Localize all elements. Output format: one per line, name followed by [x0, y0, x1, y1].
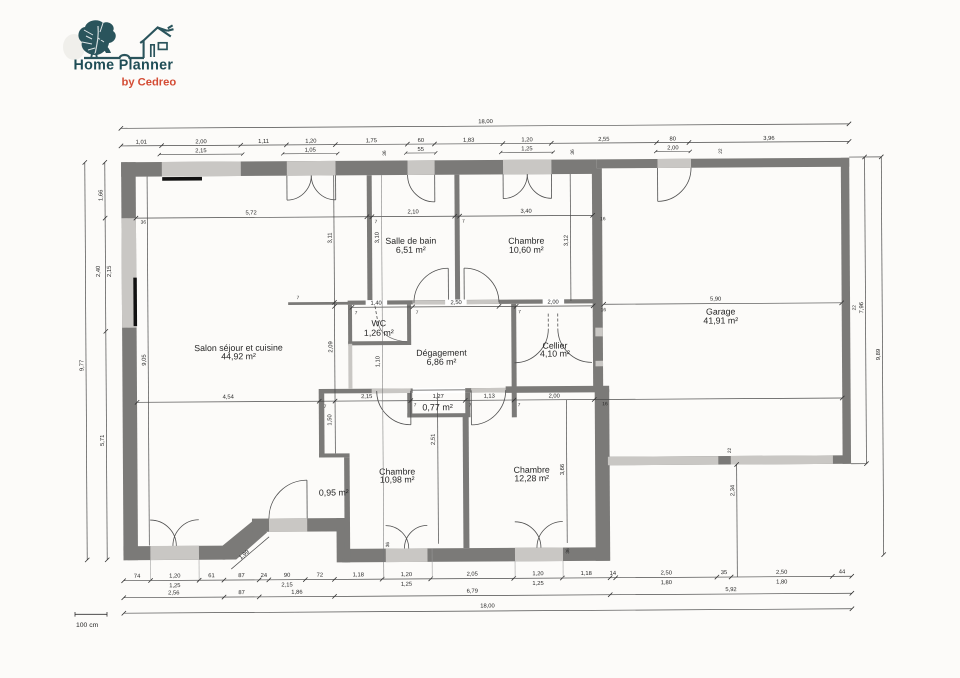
svg-text:10,98 m²: 10,98 m²: [380, 474, 415, 484]
svg-text:7: 7: [414, 402, 417, 408]
svg-text:1,13: 1,13: [484, 394, 495, 400]
svg-text:2,15: 2,15: [107, 266, 113, 277]
svg-text:36: 36: [570, 149, 576, 155]
svg-text:100 cm: 100 cm: [76, 622, 99, 629]
svg-text:74: 74: [134, 574, 141, 580]
svg-text:87: 87: [238, 590, 244, 596]
svg-text:Home Planner: Home Planner: [74, 58, 174, 74]
svg-text:by Cedreo: by Cedreo: [122, 77, 177, 89]
svg-text:22: 22: [727, 447, 733, 453]
svg-text:1,25: 1,25: [532, 581, 543, 587]
svg-text:2,50: 2,50: [661, 570, 672, 576]
svg-text:1,10: 1,10: [375, 356, 381, 367]
svg-text:41,91 m²: 41,91 m²: [703, 315, 738, 325]
svg-text:90: 90: [284, 573, 290, 579]
svg-text:6,86 m²: 6,86 m²: [427, 357, 457, 367]
svg-text:5,72: 5,72: [245, 210, 256, 216]
svg-text:5,92: 5,92: [725, 587, 736, 593]
svg-text:7: 7: [324, 404, 327, 410]
svg-text:1,20: 1,20: [305, 139, 316, 145]
svg-text:6,51 m²: 6,51 m²: [396, 245, 426, 255]
svg-text:1,20: 1,20: [401, 572, 412, 578]
svg-text:1,01: 1,01: [136, 140, 147, 146]
svg-text:3,12: 3,12: [564, 235, 570, 246]
svg-text:0,77 m²: 0,77 m²: [422, 402, 453, 412]
svg-text:2,50: 2,50: [450, 300, 461, 306]
svg-text:1,25: 1,25: [521, 146, 532, 152]
svg-text:1,40: 1,40: [370, 301, 381, 307]
svg-text:36: 36: [382, 150, 388, 156]
svg-text:3,11: 3,11: [328, 232, 334, 243]
svg-text:16: 16: [601, 307, 607, 313]
svg-text:3,40: 3,40: [520, 209, 531, 215]
svg-text:22: 22: [718, 148, 724, 154]
svg-text:2,05: 2,05: [467, 572, 478, 578]
svg-text:3,10: 3,10: [375, 232, 381, 243]
svg-text:1,83: 1,83: [463, 138, 474, 144]
svg-text:14: 14: [610, 571, 617, 577]
svg-text:7: 7: [469, 403, 472, 409]
svg-text:7,96: 7,96: [859, 302, 865, 313]
svg-text:3,66: 3,66: [560, 464, 566, 475]
svg-text:2,09: 2,09: [328, 341, 334, 352]
svg-text:4,54: 4,54: [223, 395, 235, 401]
svg-text:60: 60: [418, 138, 424, 144]
svg-text:2,00: 2,00: [195, 139, 206, 145]
svg-text:80: 80: [670, 136, 676, 142]
svg-text:72: 72: [317, 573, 323, 579]
svg-text:1,05: 1,05: [305, 148, 316, 154]
svg-text:2,00: 2,00: [549, 394, 560, 400]
svg-text:1,66: 1,66: [98, 190, 104, 201]
svg-text:1,86: 1,86: [291, 590, 302, 596]
svg-text:7: 7: [375, 219, 378, 225]
svg-text:44: 44: [839, 569, 846, 575]
svg-text:7: 7: [518, 402, 521, 408]
svg-text:35: 35: [721, 570, 727, 576]
svg-text:1,80: 1,80: [661, 580, 672, 586]
svg-text:1,80: 1,80: [776, 579, 787, 585]
svg-text:1,27: 1,27: [433, 394, 444, 400]
svg-text:24: 24: [261, 573, 268, 579]
svg-text:36: 36: [141, 220, 147, 226]
svg-text:2,15: 2,15: [281, 582, 292, 588]
svg-text:2,00: 2,00: [667, 145, 678, 151]
svg-text:18,00: 18,00: [478, 119, 493, 125]
svg-text:10,60 m²: 10,60 m²: [509, 245, 544, 255]
svg-text:36: 36: [565, 548, 571, 554]
svg-text:2,00: 2,00: [547, 300, 558, 306]
svg-text:9,77: 9,77: [79, 360, 85, 371]
svg-text:0,95 m²: 0,95 m²: [319, 487, 349, 497]
svg-text:2,15: 2,15: [361, 394, 372, 400]
svg-text:36: 36: [385, 542, 391, 548]
svg-text:7: 7: [297, 295, 300, 301]
svg-text:1,18: 1,18: [581, 571, 592, 577]
svg-text:7: 7: [462, 219, 465, 225]
svg-text:1,75: 1,75: [366, 138, 377, 144]
svg-text:2,15: 2,15: [195, 148, 206, 154]
svg-text:9,05: 9,05: [142, 354, 148, 365]
svg-text:1,20: 1,20: [521, 137, 532, 143]
svg-text:87: 87: [238, 573, 244, 579]
svg-text:55: 55: [417, 147, 423, 153]
svg-text:6,79: 6,79: [467, 589, 478, 595]
svg-text:7: 7: [518, 309, 521, 315]
svg-text:2,51: 2,51: [431, 434, 437, 445]
svg-text:9,89: 9,89: [876, 349, 882, 360]
svg-text:3,96: 3,96: [763, 136, 774, 142]
svg-text:1,20: 1,20: [532, 571, 543, 577]
svg-text:5,71: 5,71: [100, 435, 106, 446]
svg-text:1,25: 1,25: [169, 583, 180, 589]
svg-text:16: 16: [600, 216, 606, 222]
svg-text:2,55: 2,55: [598, 137, 609, 143]
svg-text:1,50: 1,50: [327, 414, 333, 425]
svg-text:16: 16: [602, 401, 608, 407]
svg-text:2,50: 2,50: [776, 570, 787, 576]
svg-text:7: 7: [416, 310, 419, 316]
svg-text:1,26 m²: 1,26 m²: [364, 328, 394, 338]
svg-text:22: 22: [852, 305, 858, 311]
svg-text:61: 61: [208, 573, 214, 579]
svg-text:1,11: 1,11: [258, 139, 269, 145]
svg-text:4,10 m²: 4,10 m²: [540, 348, 570, 358]
svg-text:2,40: 2,40: [96, 266, 102, 277]
svg-text:18,00: 18,00: [480, 603, 495, 609]
svg-text:2,56: 2,56: [168, 590, 179, 596]
svg-text:12,28 m²: 12,28 m²: [514, 473, 549, 483]
svg-text:1,20: 1,20: [169, 573, 180, 579]
svg-text:7: 7: [355, 310, 358, 316]
svg-text:5,90: 5,90: [710, 297, 721, 303]
svg-text:44,92 m²: 44,92 m²: [221, 351, 256, 361]
svg-text:2,10: 2,10: [407, 209, 418, 215]
svg-text:1,25: 1,25: [401, 582, 412, 588]
svg-text:1,18: 1,18: [353, 572, 364, 578]
svg-text:2,34: 2,34: [730, 484, 736, 496]
